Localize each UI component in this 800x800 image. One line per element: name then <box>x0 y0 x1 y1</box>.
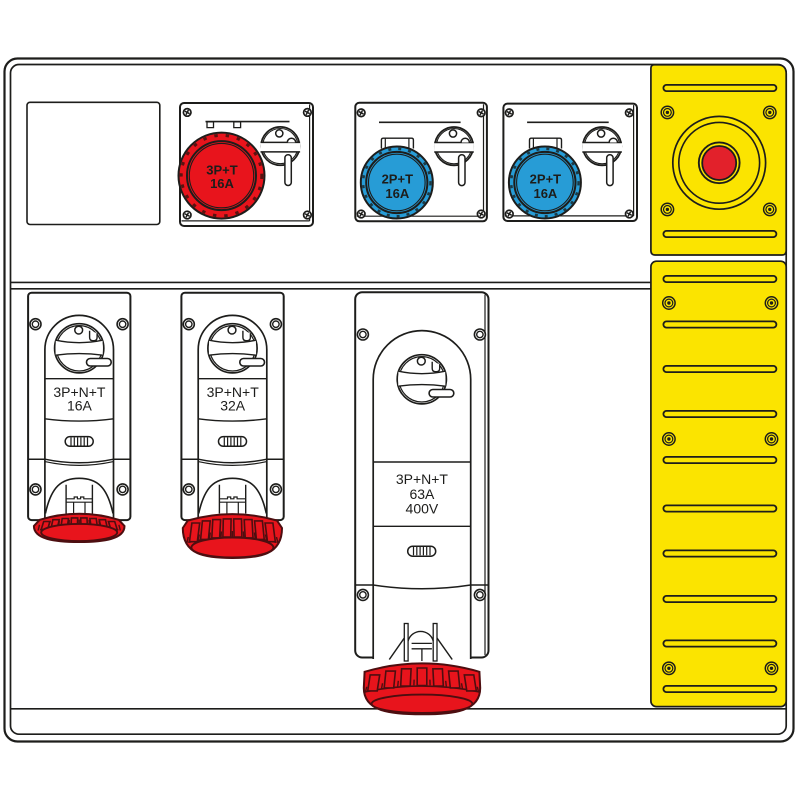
svg-text:16A: 16A <box>385 186 409 201</box>
svg-text:3P+N+T: 3P+N+T <box>396 471 449 487</box>
svg-text:16A: 16A <box>533 186 557 201</box>
svg-text:32A: 32A <box>220 398 246 414</box>
svg-text:16A: 16A <box>67 398 93 414</box>
svg-text:63A: 63A <box>409 486 435 502</box>
svg-text:400V: 400V <box>406 501 439 517</box>
svg-text:2P+T: 2P+T <box>382 172 413 187</box>
svg-text:2P+T: 2P+T <box>530 172 561 187</box>
svg-text:16A: 16A <box>210 176 234 191</box>
